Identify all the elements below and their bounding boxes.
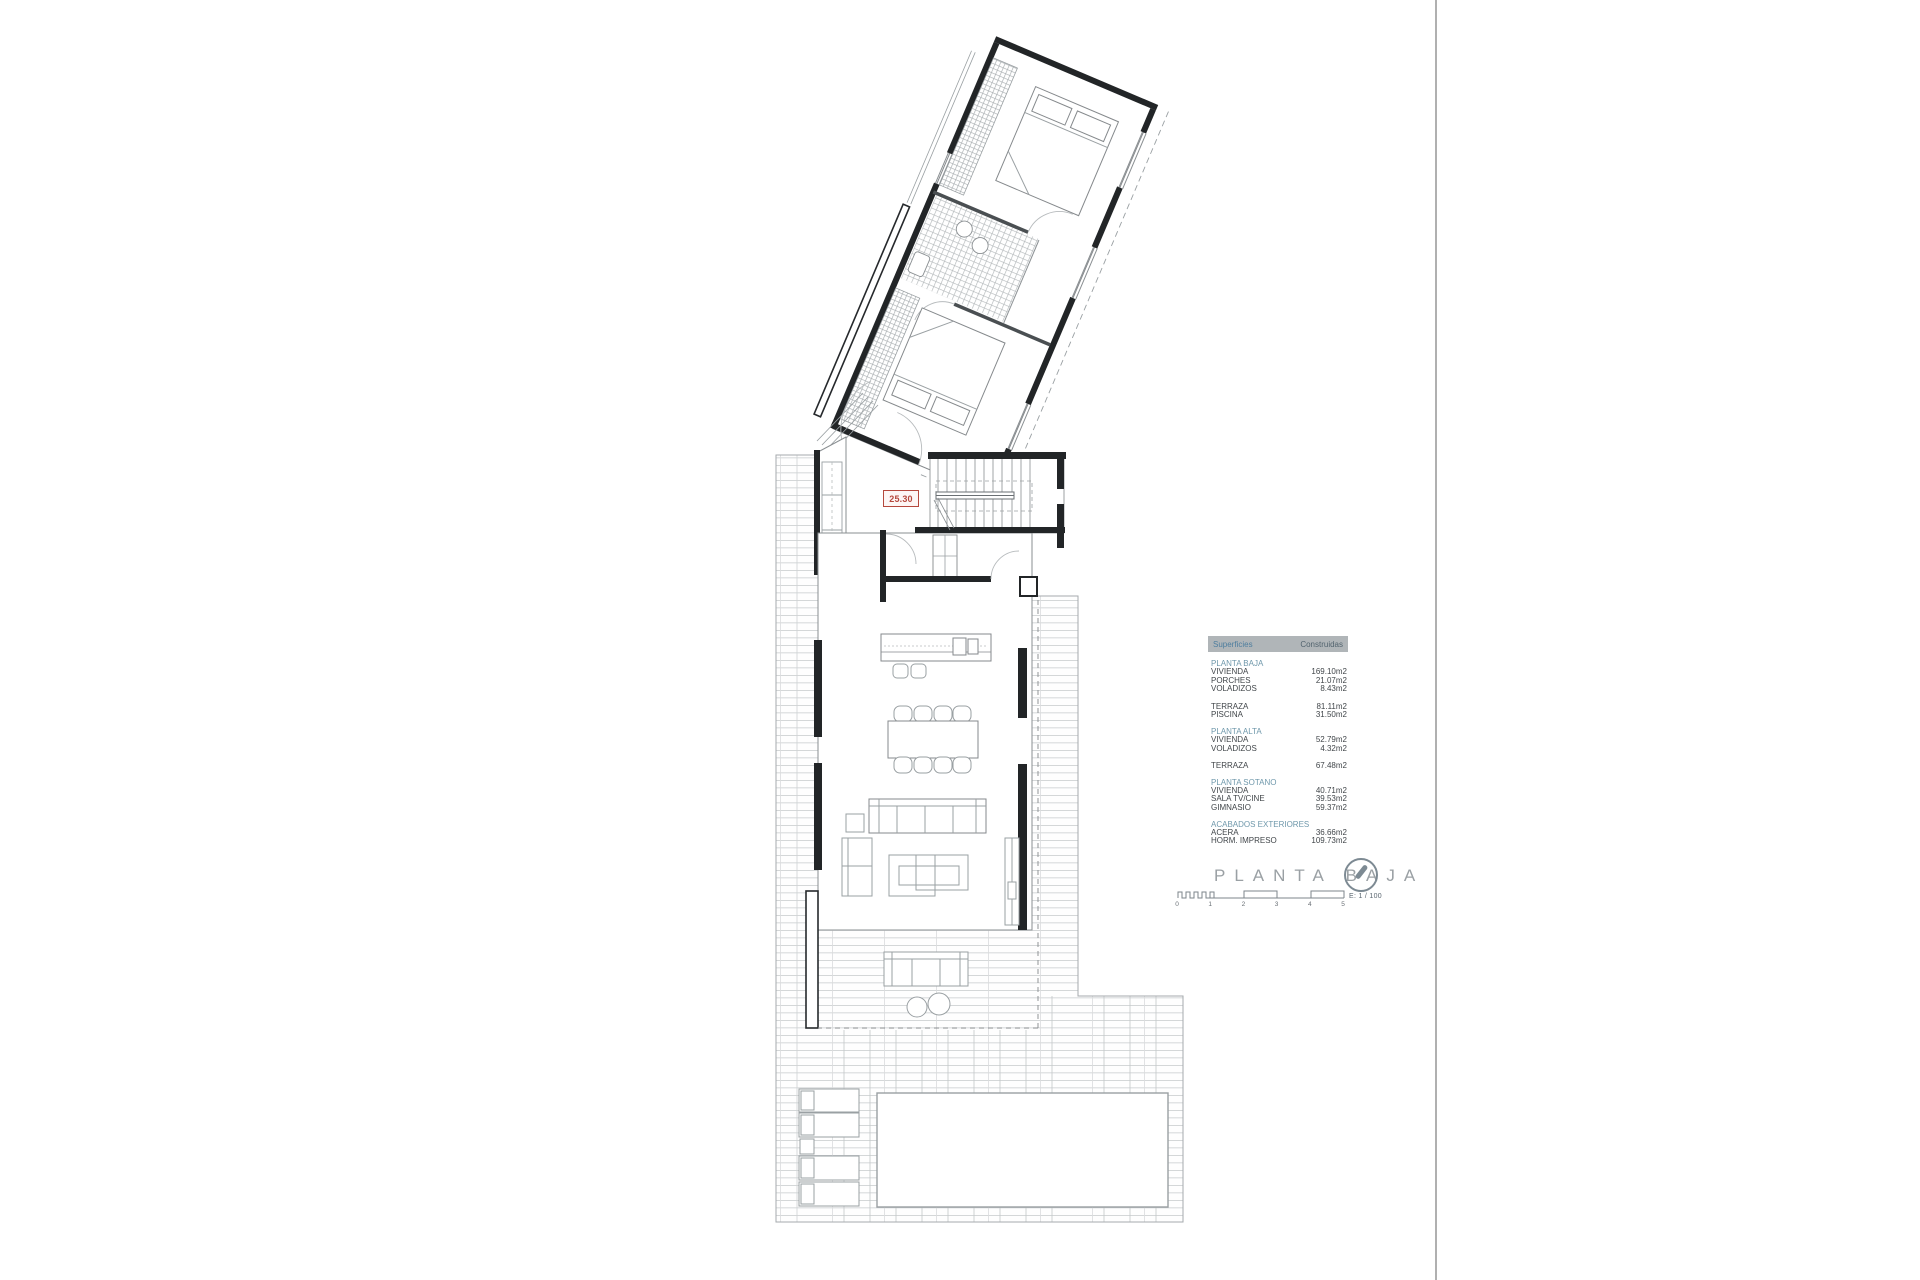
north-arrow-needle	[1355, 864, 1369, 880]
row-label: TERRAZA	[1211, 762, 1248, 771]
row-label: VOLADIZOS	[1211, 685, 1257, 694]
table-section: TERRAZA81.11m2PISCINA31.50m2	[1211, 703, 1347, 720]
sink	[968, 639, 978, 654]
table-section: TERRAZA67.48m2	[1211, 762, 1347, 771]
row-label: PISCINA	[1211, 711, 1243, 720]
table-section: PLANTA SOTANOVIVIENDA40.71m2SALA TV/CINE…	[1211, 778, 1347, 813]
scale-tick: 3	[1272, 901, 1282, 908]
table-section: ACABADOS EXTERIORESACERA36.66m2HORM. IMP…	[1211, 820, 1347, 846]
upper-wing	[809, 28, 1170, 508]
row-value: 109.73m2	[1311, 837, 1347, 846]
areas-table: Superficies Construidas PLANTA BAJAVIVIE…	[1208, 636, 1348, 846]
sink	[953, 638, 966, 655]
scale-label: E: 1 / 100	[1349, 893, 1382, 900]
dimension-label: 25.30	[883, 490, 919, 507]
table-section: PLANTA ALTAVIVIENDA52.79m2VOLADIZOS4.32m…	[1211, 727, 1347, 753]
scale-tick: 2	[1238, 901, 1248, 908]
areas-table-header: Superficies Construidas	[1208, 636, 1348, 652]
pillar	[1020, 577, 1037, 596]
row-value: 8.43m2	[1320, 685, 1347, 694]
col-construidas: Construidas	[1300, 640, 1343, 649]
table-row: VOLADIZOS4.32m2	[1211, 745, 1347, 754]
table-section: PLANTA BAJAVIVIENDA169.10m2PORCHES21.07m…	[1211, 659, 1347, 694]
row-label: HORM. IMPRESO	[1211, 837, 1277, 846]
row-value: 67.48m2	[1316, 762, 1347, 771]
floor-plan-sheet: 25.30 Superficies Construidas PLANTA BAJ…	[0, 0, 1920, 1280]
table-row: VOLADIZOS8.43m2	[1211, 685, 1347, 694]
page-divider	[1435, 0, 1437, 1280]
scale-tick: 1	[1205, 901, 1215, 908]
sheet-title: PLANTA BAJA	[1214, 866, 1344, 886]
scale-tick: 0	[1172, 901, 1182, 908]
row-value: 31.50m2	[1316, 711, 1347, 720]
scale-tick: 4	[1305, 901, 1315, 908]
side-table	[800, 1139, 814, 1154]
table-row: HORM. IMPRESO109.73m2	[1211, 837, 1347, 846]
table-row: GIMNASIO59.37m2	[1211, 804, 1347, 813]
floor-plan-drawing	[0, 0, 1920, 1280]
stool	[911, 664, 926, 678]
row-label: VOLADIZOS	[1211, 745, 1257, 754]
pouf	[907, 997, 927, 1017]
areas-table-body: PLANTA BAJAVIVIENDA169.10m2PORCHES21.07m…	[1208, 659, 1348, 846]
row-value: 4.32m2	[1320, 745, 1347, 754]
scale-bar-graphic	[1175, 884, 1375, 900]
pool	[877, 1093, 1168, 1207]
porch-wall-lower	[806, 891, 818, 1028]
col-superficies: Superficies	[1213, 640, 1253, 649]
table-row: TERRAZA67.48m2	[1211, 762, 1347, 771]
scale-tick: 5	[1338, 901, 1348, 908]
row-value: 59.37m2	[1316, 804, 1347, 813]
stool	[893, 664, 908, 678]
row-label: GIMNASIO	[1211, 804, 1251, 813]
pouf	[928, 993, 950, 1015]
table-row: PISCINA31.50m2	[1211, 711, 1347, 720]
